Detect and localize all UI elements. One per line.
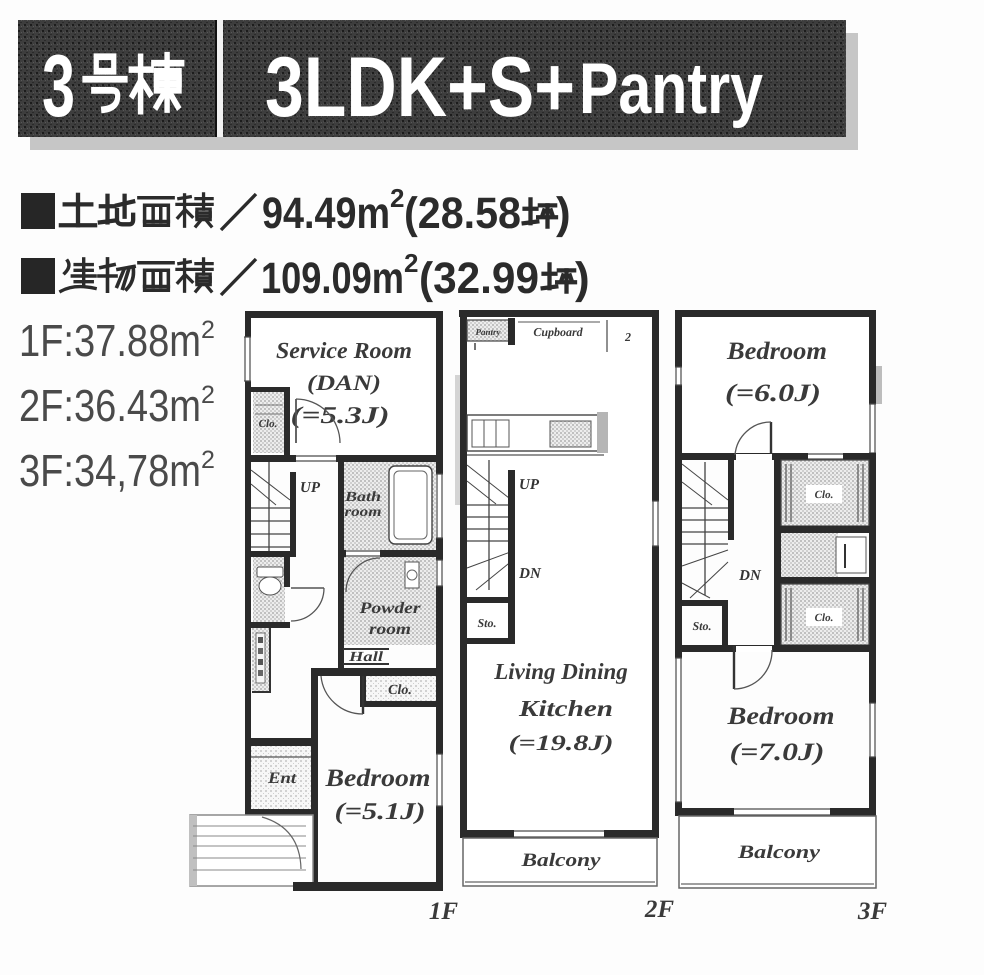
svg-text:UP: UP (519, 477, 540, 493)
svg-text:(32.99: (32.99 (419, 254, 539, 303)
svg-text:(=19.8J): (=19.8J) (509, 730, 614, 755)
svg-text:2: 2 (201, 446, 215, 474)
svg-text:DN: DN (518, 566, 542, 582)
svg-text:2F:36.43m: 2F:36.43m (19, 380, 201, 431)
svg-text:Clo.: Clo. (815, 612, 834, 624)
svg-text:Balcony: Balcony (520, 850, 601, 871)
svg-text:Ent: Ent (267, 770, 297, 787)
svg-text:(=5.1J): (=5.1J) (335, 799, 426, 825)
svg-text:Sto.: Sto. (692, 619, 711, 633)
svg-text:3F:34,78m: 3F:34,78m (19, 445, 201, 496)
svg-text:94.49m: 94.49m (262, 189, 390, 238)
svg-text:Pantry: Pantry (475, 327, 501, 337)
svg-text:): ) (575, 254, 590, 303)
svg-text:Service Room: Service Room (276, 338, 412, 363)
svg-text:room: room (345, 505, 382, 520)
svg-text:3LDK+S+: 3LDK+S+ (265, 40, 575, 135)
svg-text:(DAN): (DAN) (307, 370, 381, 395)
svg-text:1F: 1F (429, 898, 459, 925)
svg-text:109.09m: 109.09m (261, 254, 404, 303)
svg-text:2: 2 (390, 183, 404, 213)
svg-text:3F: 3F (857, 898, 888, 925)
svg-text:(28.58: (28.58 (404, 189, 521, 238)
svg-text:2: 2 (404, 248, 418, 278)
svg-text:Bedroom: Bedroom (726, 703, 834, 730)
svg-text:2F: 2F (644, 896, 675, 923)
svg-text:room: room (369, 621, 411, 638)
svg-text:(=6.0J): (=6.0J) (725, 380, 821, 407)
svg-text:Living Dining: Living Dining (493, 659, 628, 684)
svg-text:3: 3 (42, 36, 75, 135)
svg-text:Clo.: Clo. (815, 489, 834, 501)
svg-text:Powder: Powder (358, 600, 421, 617)
svg-text:2: 2 (624, 330, 631, 344)
svg-text:1F:37.88m: 1F:37.88m (19, 315, 201, 366)
svg-text:): ) (556, 189, 571, 238)
svg-text:Hall: Hall (348, 650, 383, 665)
svg-text:(=5.3J): (=5.3J) (291, 403, 390, 429)
svg-text:Pantry: Pantry (579, 49, 763, 129)
svg-text:Balcony: Balcony (737, 842, 821, 863)
svg-text:(=7.0J): (=7.0J) (730, 739, 825, 766)
svg-text:Kitchen: Kitchen (518, 696, 613, 721)
svg-text:Cupboard: Cupboard (533, 325, 583, 339)
svg-text:Clo.: Clo. (259, 418, 278, 430)
svg-text:UP: UP (300, 480, 321, 496)
svg-text:Bath: Bath (344, 490, 382, 505)
svg-text:Bedroom: Bedroom (324, 765, 430, 792)
svg-text:Bedroom: Bedroom (726, 338, 827, 365)
svg-text:Clo.: Clo. (388, 683, 412, 698)
svg-text:2: 2 (201, 381, 215, 409)
svg-text:DN: DN (738, 568, 762, 584)
svg-text:Sto.: Sto. (477, 616, 496, 630)
svg-text:2: 2 (201, 316, 215, 344)
